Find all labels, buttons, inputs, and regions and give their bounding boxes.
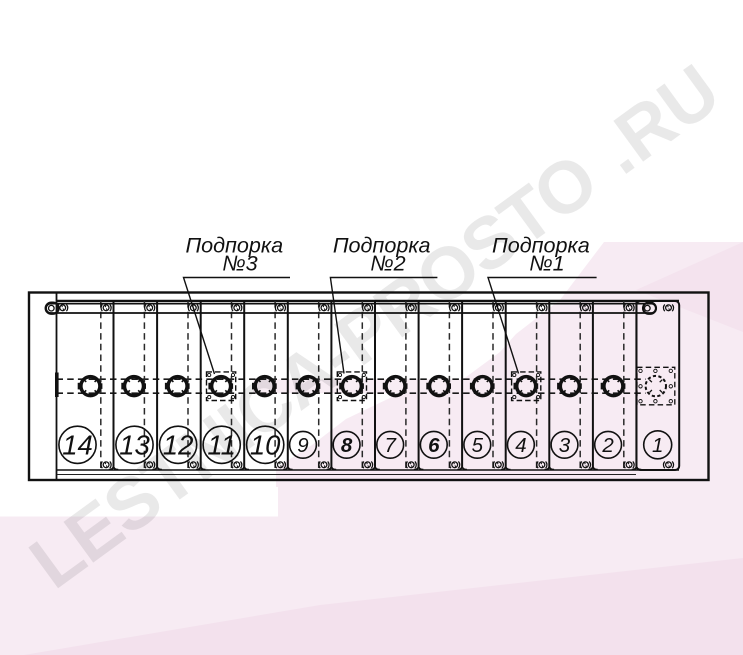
svg-text:2: 2 xyxy=(601,434,614,457)
svg-text:12: 12 xyxy=(163,430,194,461)
svg-text:11: 11 xyxy=(207,430,236,461)
svg-text:4: 4 xyxy=(515,434,526,457)
svg-text:14: 14 xyxy=(62,430,93,461)
svg-text:10: 10 xyxy=(250,430,281,461)
svg-text:6: 6 xyxy=(428,434,440,457)
svg-text:13: 13 xyxy=(119,430,150,461)
svg-text:№1: №1 xyxy=(529,250,564,275)
svg-text:№2: №2 xyxy=(370,250,405,275)
svg-text:7: 7 xyxy=(384,434,397,457)
svg-text:8: 8 xyxy=(341,434,353,457)
svg-text:9: 9 xyxy=(297,434,308,457)
svg-text:№3: №3 xyxy=(222,250,257,275)
svg-text:5: 5 xyxy=(472,434,484,457)
svg-text:1: 1 xyxy=(652,434,663,457)
svg-text:3: 3 xyxy=(559,434,571,457)
